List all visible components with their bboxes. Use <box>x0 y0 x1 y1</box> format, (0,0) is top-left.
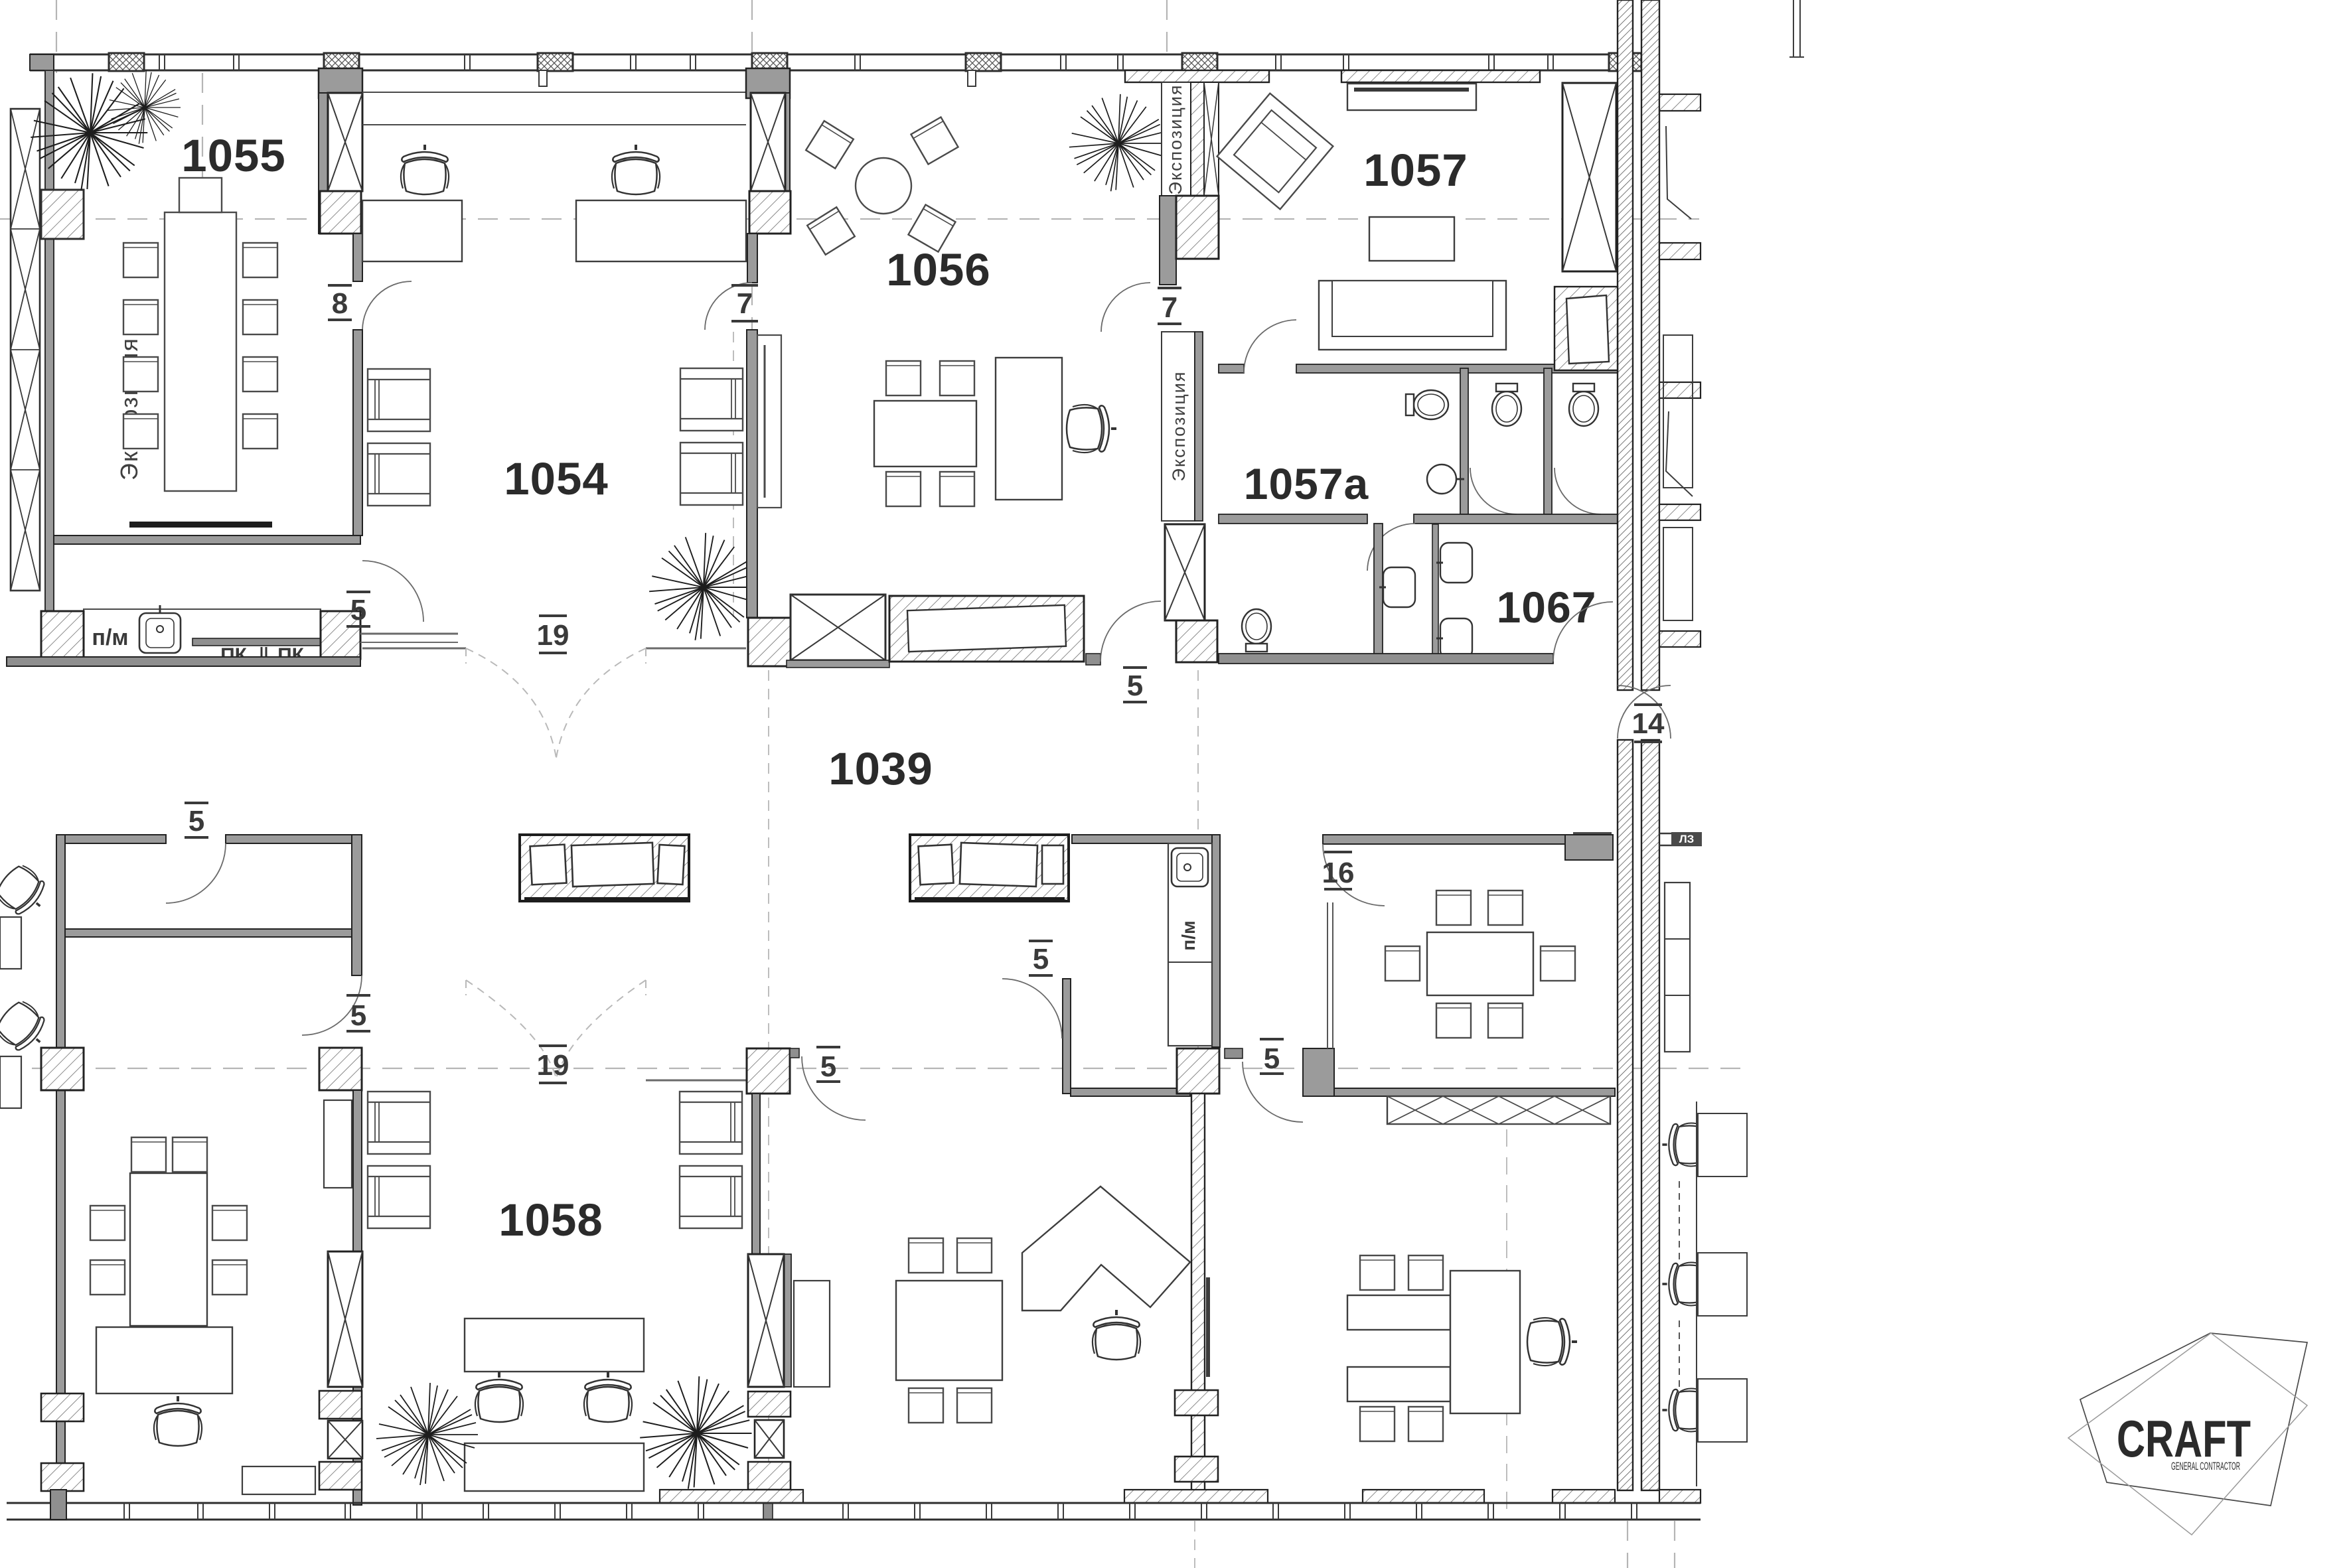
svg-text:п/м: п/м <box>1178 920 1199 950</box>
svg-text:п/м: п/м <box>92 625 128 650</box>
svg-text:14: 14 <box>1632 707 1665 740</box>
svg-text:5: 5 <box>820 1050 836 1083</box>
svg-text:1058: 1058 <box>498 1194 603 1246</box>
svg-text:CRAFT: CRAFT <box>2117 1409 2251 1468</box>
svg-text:19: 19 <box>537 1049 569 1082</box>
svg-text:1057: 1057 <box>1363 145 1468 196</box>
svg-text:5: 5 <box>350 999 366 1032</box>
svg-text:8: 8 <box>332 287 348 320</box>
svg-text:ЛЗ: ЛЗ <box>1679 833 1695 845</box>
svg-text:5: 5 <box>1127 670 1143 702</box>
svg-text:1039: 1039 <box>828 743 933 794</box>
svg-text:1054: 1054 <box>504 453 609 504</box>
svg-text:16: 16 <box>1322 857 1355 889</box>
svg-text:Экспозиция: Экспозиция <box>1166 84 1185 195</box>
svg-text:19: 19 <box>537 619 569 652</box>
svg-text:5: 5 <box>1264 1042 1280 1075</box>
svg-text:7: 7 <box>1162 291 1177 324</box>
svg-text:1055: 1055 <box>181 130 286 181</box>
svg-text:5: 5 <box>189 805 204 837</box>
svg-text:5: 5 <box>1033 943 1049 975</box>
svg-text:5: 5 <box>350 594 366 626</box>
svg-text:7: 7 <box>737 287 753 320</box>
svg-text:1067: 1067 <box>1497 583 1597 632</box>
svg-text:Экспозиция: Экспозиция <box>1169 371 1189 482</box>
svg-text:1057a: 1057a <box>1244 459 1369 508</box>
svg-text:GENERAL CONTRACTOR: GENERAL CONTRACTOR <box>2171 1460 2240 1472</box>
